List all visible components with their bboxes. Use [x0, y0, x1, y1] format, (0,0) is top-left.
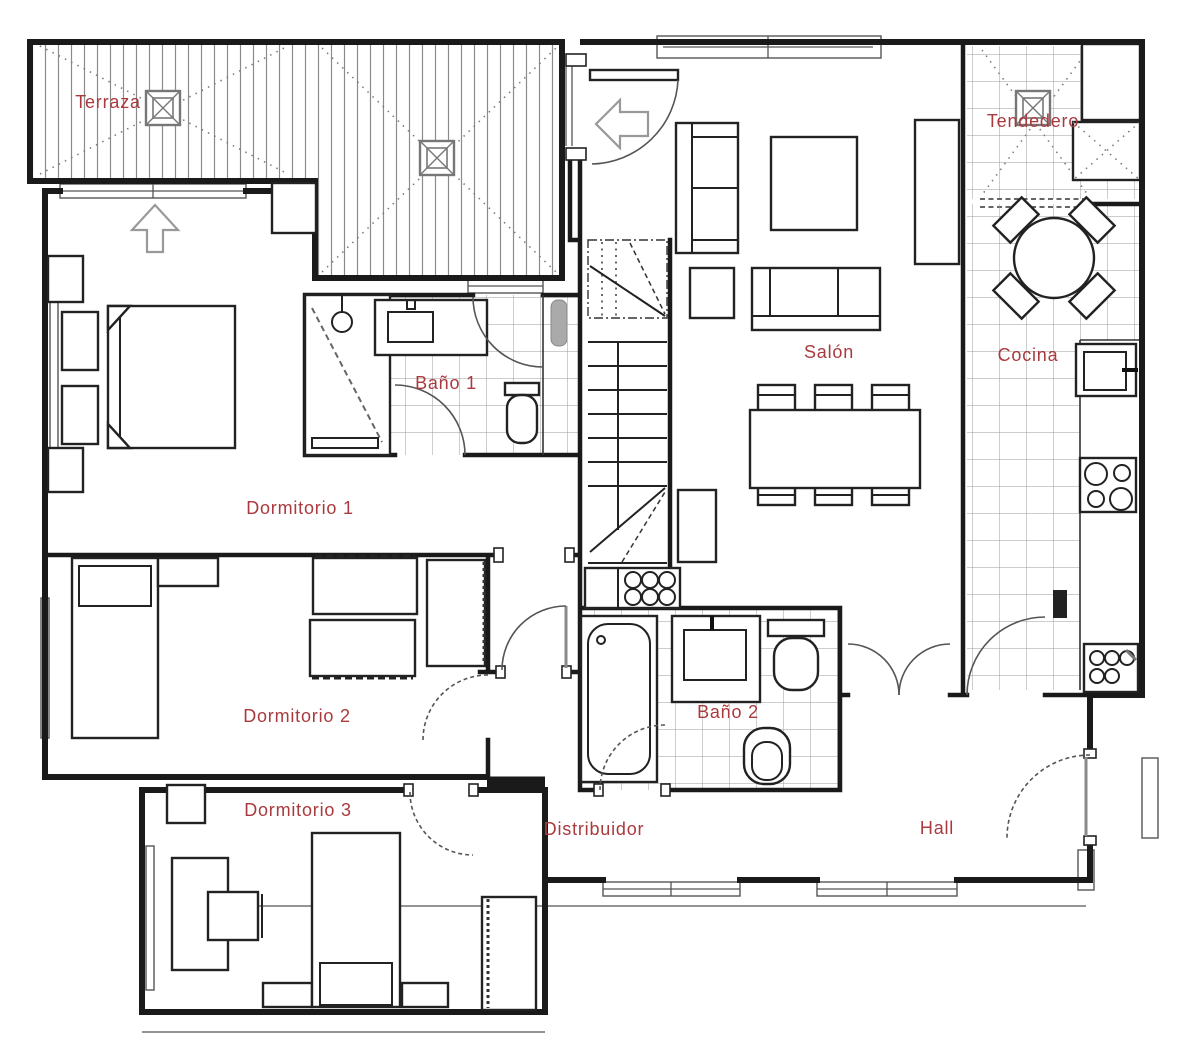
up-arrow-icon: [132, 205, 178, 252]
bed: [310, 620, 415, 676]
wardrobe: [427, 560, 485, 666]
nightstand: [62, 312, 98, 370]
room-label-hall: Hall: [920, 818, 954, 838]
toilet: [507, 395, 537, 443]
single-bed: [72, 558, 158, 738]
water-heater: [551, 300, 567, 346]
door-jamb: [404, 784, 413, 796]
room-label-dormitorio3: Dormitorio 3: [244, 800, 352, 820]
pillar: [272, 183, 316, 233]
chair: [208, 892, 258, 940]
side-cabinet: [678, 490, 716, 562]
door-jamb: [496, 666, 505, 678]
toilet-tank: [505, 383, 539, 395]
floor-plan-page: Terraza Tendedero Salón Cocina Baño 1 Do…: [0, 0, 1200, 1055]
drain-icon: [420, 141, 454, 175]
entrance-door-arc: [1007, 755, 1090, 838]
window: [146, 846, 154, 990]
counter-item: [1053, 590, 1067, 618]
desk: [158, 558, 218, 586]
room-label-cocina: Cocina: [998, 345, 1059, 365]
window: [50, 302, 58, 452]
vanity: [375, 300, 487, 355]
armchair: [690, 268, 734, 318]
door-jamb: [565, 548, 574, 562]
left-arrow-icon: [596, 100, 648, 148]
coffee-table: [771, 137, 857, 230]
room-terraza: [30, 42, 562, 278]
door-arc: [502, 606, 566, 670]
stairs: [588, 240, 667, 563]
single-bed: [312, 833, 400, 1007]
room-label-tendedero: Tendedero: [987, 111, 1079, 131]
bed: [313, 558, 417, 614]
room-label-terraza: Terraza: [75, 92, 141, 112]
room-label-bano1: Baño 1: [415, 373, 477, 393]
room-label-distribuidor: Distribuidor: [544, 819, 645, 839]
double-door-arc: [848, 644, 899, 695]
drain-icon: [146, 91, 180, 125]
door-leaf: [590, 70, 678, 80]
tv-cabinet: [915, 120, 959, 264]
door-jamb: [1084, 836, 1096, 845]
room-label-salon: Salón: [804, 342, 854, 362]
door-jamb: [661, 784, 670, 796]
dining-set: [750, 385, 920, 505]
door-arc: [592, 80, 678, 164]
salon-furniture: [585, 120, 959, 608]
door-jamb: [1084, 749, 1096, 758]
room-label-dormitorio2: Dormitorio 2: [243, 706, 351, 726]
dormitorio3-furniture: [172, 833, 536, 1010]
dormitorio1-furniture: [62, 306, 235, 448]
exterior-ledge: [1142, 758, 1158, 838]
pilaster: [48, 448, 83, 492]
door-jamb: [594, 784, 603, 796]
double-door-arc: [899, 644, 950, 695]
terrace-decking: [30, 42, 562, 278]
door-arc: [423, 675, 488, 740]
utility-unit: [1073, 122, 1140, 180]
loveseat: [752, 268, 880, 330]
door-jamb: [566, 148, 586, 160]
toilet: [774, 638, 818, 690]
pilaster: [48, 256, 83, 302]
toilet-tank: [768, 620, 824, 636]
kitchen-table: [1014, 218, 1094, 298]
room-label-dormitorio1: Dormitorio 1: [246, 498, 354, 518]
terrace-passage: [566, 66, 572, 146]
bathtub: [581, 616, 657, 782]
pillar: [167, 785, 205, 823]
door-jamb: [494, 548, 503, 562]
floor-plan: Terraza Tendedero Salón Cocina Baño 1 Do…: [0, 0, 1200, 1055]
door-jamb: [469, 784, 478, 796]
door-jamb: [566, 54, 586, 66]
bidet: [744, 728, 790, 784]
nightstand: [62, 386, 98, 444]
room-label-bano2: Baño 2: [697, 702, 759, 722]
dining-table: [750, 410, 920, 488]
double-bed: [108, 306, 235, 448]
door-arc: [410, 792, 473, 855]
nightstand: [263, 983, 312, 1007]
utility-unit: [1082, 44, 1140, 120]
wardrobe: [482, 897, 536, 1010]
nightstand: [402, 983, 448, 1007]
stair-cut-line: [588, 240, 667, 318]
